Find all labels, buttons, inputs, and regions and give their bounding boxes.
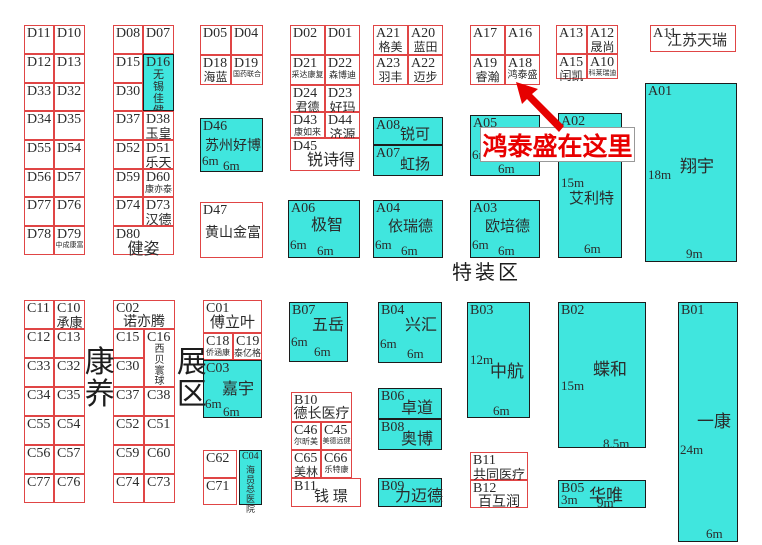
booth-d45: D45锐诗得 (290, 138, 360, 171)
booth-a12: A12晟尚 (587, 25, 618, 54)
booth-name: 钱 璟 (314, 490, 348, 506)
booth-code: C55 (25, 417, 53, 432)
booth-code: D23 (326, 86, 359, 101)
booth-c10: C10承康 (54, 300, 85, 329)
booth-d35: D35 (54, 111, 85, 140)
booth-code: D76 (55, 198, 84, 213)
booth-name: 科莱瑞迪 (588, 70, 617, 77)
booth-d54: D54 (54, 140, 85, 169)
booth-code: D34 (25, 112, 53, 127)
booth-code: D12 (25, 55, 53, 70)
booth-code: D43 (291, 113, 324, 128)
booth-code: A20 (409, 26, 442, 41)
dimension-label: 3m (561, 493, 578, 506)
booth-code: D02 (291, 26, 324, 41)
booth-code: A06 (289, 201, 359, 216)
booth-code: A10 (588, 55, 617, 70)
booth-d21: D21采达康复 (290, 55, 325, 85)
booth-code: C33 (25, 359, 53, 374)
booth-name: 乐特康 (322, 466, 351, 474)
booth-d34: D34 (24, 111, 54, 140)
booth-code: A21 (374, 26, 407, 41)
booth-name: 采达康复 (291, 71, 324, 79)
booth-d08: D08 (113, 25, 143, 54)
booth-code: D22 (326, 56, 359, 71)
booth-name: 翔宇 (680, 158, 714, 176)
booth-b09: B09力迈德 (378, 478, 442, 507)
booth-code: C10 (55, 301, 84, 316)
booth-code: A17 (471, 26, 504, 41)
booth-d55: D55 (24, 140, 54, 169)
booth-c33: C33 (24, 358, 54, 387)
dimension-label: 6m (314, 345, 331, 358)
booth-b02: B02蝶和15m8.5m (558, 302, 646, 448)
dimension-label: 6m (498, 162, 515, 175)
booth-name: 奥博 (401, 432, 433, 449)
booth-code: B04 (379, 303, 441, 318)
booth-code: D13 (55, 55, 84, 70)
booth-code: C11 (25, 301, 53, 316)
booth-code: B10 (292, 393, 351, 408)
booth-code: D10 (55, 26, 84, 41)
booth-code: D35 (55, 112, 84, 127)
booth-name: 迈步 (409, 71, 442, 84)
booth-code: D51 (144, 141, 173, 156)
dimension-label: 6m (375, 238, 392, 251)
booth-a01: A01翔宇18m9m (645, 83, 737, 262)
booth-name: 艾利特 (569, 192, 614, 208)
booth-name: 黄山金富 (205, 227, 261, 242)
booth-a10: A10科莱瑞迪 (587, 54, 618, 79)
booth-code: D77 (25, 198, 53, 213)
kangyang-zone-label: 康养 (84, 347, 116, 410)
booth-code: D24 (291, 86, 324, 101)
booth-code: C03 (204, 361, 261, 376)
booth-code: C18 (204, 334, 232, 349)
booth-code: D07 (144, 26, 173, 41)
booth-code: C60 (145, 446, 174, 461)
booth-code: C66 (322, 451, 351, 466)
booth-code: A15 (557, 55, 586, 70)
booth-code: B07 (290, 303, 347, 318)
booth-code: C57 (55, 446, 84, 461)
booth-code: C04 (240, 451, 261, 462)
booth-name: 力迈德 (395, 489, 443, 506)
dimension-label: 12m (470, 353, 493, 366)
dimension-label: 6m (498, 244, 515, 257)
dimension-label: 8.5m (603, 437, 629, 450)
booth-name: 德长医疗 (292, 408, 351, 423)
booth-d24: D24君德 (290, 85, 325, 112)
booth-code: D74 (114, 198, 142, 213)
dimension-label: 6m (317, 244, 334, 257)
booth-code: A22 (409, 56, 442, 71)
booth-c02: C02诺亦腾 (113, 300, 175, 329)
booth-name: 一康 (697, 413, 731, 431)
booth-name: 玉皇 (144, 127, 173, 141)
booth-code: C74 (114, 475, 143, 490)
booth-a21: A21格美 (373, 25, 408, 55)
booth-name: 锐诗得 (307, 153, 355, 170)
booth-a17: A17 (470, 25, 505, 55)
booth-name: 西贝寰球 (154, 345, 165, 388)
booth-b05: B05华唯3m9m (558, 480, 646, 508)
booth-d57: D57 (54, 169, 85, 197)
booth-d37: D37 (113, 111, 143, 140)
booth-d43: D43康如来 (290, 112, 325, 138)
booth-name: 蝶和 (593, 361, 627, 379)
booth-d10: D10 (54, 25, 85, 54)
booth-code: C01 (204, 301, 261, 316)
booth-c16: C16西贝寰球 (144, 329, 175, 387)
booth-name: 蓝田 (409, 41, 442, 54)
booth-name: 国药联合 (232, 71, 262, 78)
booth-name: 兴汇 (405, 318, 437, 335)
booth-b04: B04兴汇6m6m (378, 302, 442, 363)
booth-code: C37 (114, 388, 143, 403)
booth-code: C76 (55, 475, 84, 490)
booth-d76: D76 (54, 197, 85, 226)
booth-code: A01 (646, 84, 736, 99)
booth-code: C59 (114, 446, 143, 461)
booth-code: D79 (55, 227, 84, 242)
booth-code: C71 (204, 479, 236, 494)
dimension-label: 6m (380, 337, 397, 350)
booth-c55: C55 (24, 416, 54, 445)
booth-c01: C01傅立叶 (203, 300, 262, 333)
booth-a22: A22迈步 (408, 55, 443, 85)
booth-code: A13 (557, 26, 586, 41)
booth-d18: D18海蓝 (200, 55, 231, 85)
booth-code: D30 (114, 84, 142, 99)
booth-code: D04 (232, 26, 262, 41)
booth-name: 中成康富 (55, 242, 84, 249)
booth-d44: D44济源 (325, 112, 360, 138)
booth-code: C46 (292, 423, 320, 438)
booth-c38: C38 (144, 387, 175, 416)
booth-c56: C56 (24, 445, 54, 474)
booth-a04: A04依瑞德6m6m (373, 200, 443, 258)
booth-name: 泰亿格 (234, 349, 261, 358)
booth-name: 五岳 (312, 318, 344, 335)
booth-name: 健姿 (114, 242, 173, 259)
booth-d73: D73汉德 (143, 197, 174, 226)
booth-name: 中航 (490, 363, 524, 381)
booth-code: D11 (25, 26, 53, 41)
booth-name: 康亦泰 (144, 185, 173, 194)
booth-code: C30 (114, 359, 143, 374)
booth-code: D73 (144, 198, 173, 213)
booth-code: C62 (204, 451, 236, 466)
dimension-label: 6m (223, 159, 240, 172)
booth-code: D55 (25, 141, 53, 156)
booth-c19: C19泰亿格 (233, 333, 262, 360)
booth-code: D54 (55, 141, 84, 156)
booth-a15: A15闰凯 (556, 54, 587, 79)
dimension-label: 6m (291, 335, 308, 348)
booth-c73: C73 (144, 474, 175, 503)
booth-name: 百互润 (471, 496, 527, 511)
booth-code: C15 (114, 330, 143, 345)
highlight-banner: 鸿泰盛在这里 (480, 127, 635, 162)
booth-name: 闰凯 (557, 70, 586, 83)
booth-b10: B10德长医疗 (291, 392, 352, 422)
booth-d23: D23好玛 (325, 85, 360, 112)
booth-code: D47 (201, 203, 262, 218)
booth-code: D01 (326, 26, 359, 41)
booth-d05: D05 (200, 25, 231, 55)
booth-c13: C13 (54, 329, 85, 358)
booth-code: C19 (234, 334, 261, 349)
booth-a19: A19睿瀚 (470, 55, 505, 85)
booth-c59: C59 (113, 445, 144, 474)
booth-name: 欧培德 (485, 220, 530, 236)
booth-b08: B08奥博 (378, 419, 442, 450)
booth-name: 羽丰 (374, 71, 407, 84)
booth-code: C13 (55, 330, 84, 345)
booth-a11: A11江苏天瑞 (650, 25, 736, 52)
booth-d12: D12 (24, 54, 54, 83)
booth-code: D80 (114, 227, 173, 242)
booth-c71: C71 (203, 478, 237, 505)
booth-d52: D52 (113, 140, 143, 169)
booth-code: D18 (201, 56, 230, 71)
special-zone-label: 特装区 (452, 263, 521, 284)
booth-c32: C32 (54, 358, 85, 387)
booth-code: C51 (145, 417, 174, 432)
booth-c51: C51 (144, 416, 175, 445)
booth-code: C65 (292, 451, 320, 466)
booth-code: C35 (55, 388, 84, 403)
booth-d77: D77 (24, 197, 54, 226)
booth-c30: C30 (113, 358, 144, 387)
booth-code: A03 (471, 201, 539, 216)
dimension-label: 15m (561, 176, 584, 189)
booth-d47: D47黄山金富 (200, 202, 263, 258)
booth-c11: C11 (24, 300, 54, 329)
booth-name: 睿瀚 (471, 71, 504, 84)
booth-d19: D19国药联合 (231, 55, 263, 85)
dimension-label: 18m (648, 168, 671, 181)
booth-name: 依瑞德 (388, 220, 433, 236)
booth-code: C16 (145, 330, 174, 345)
dimension-label: 9m (686, 247, 703, 260)
dimension-label: 6m (706, 527, 723, 540)
booth-b01: B01一康24m6m (678, 302, 738, 542)
booth-a16: A16 (505, 25, 540, 55)
booth-c65: C65美林 (291, 450, 321, 478)
booth-c76: C76 (54, 474, 85, 503)
booth-name: 美德远健 (322, 438, 351, 445)
booth-name: 卓道 (401, 401, 433, 418)
booth-d30: D30 (113, 83, 143, 111)
booth-d46: D46苏州好博6m6m (200, 118, 263, 172)
dimension-label: 6m (407, 347, 424, 360)
booth-name: 嘉宇 (222, 382, 254, 399)
booth-code: C54 (55, 417, 84, 432)
booth-c15: C15 (113, 329, 144, 358)
booth-c34: C34 (24, 387, 54, 416)
booth-c45: C45美德远健 (321, 422, 352, 450)
booth-d22: D22森博迪 (325, 55, 360, 85)
booth-c04: C04海员总医院 (239, 450, 262, 505)
booth-code: C38 (145, 388, 174, 403)
booth-name: 侨涵康 (204, 349, 232, 357)
booth-name: 格美 (374, 41, 407, 54)
booth-d56: D56 (24, 169, 54, 197)
booth-code: C52 (114, 417, 143, 432)
booth-name: 尔昕美 (292, 438, 320, 446)
booth-code: B12 (471, 481, 527, 496)
booth-code: B02 (559, 303, 645, 318)
booth-c12: C12 (24, 329, 54, 358)
dimension-label: 6m (472, 238, 489, 251)
booth-a13: A13 (556, 25, 587, 54)
booth-name: 康如来 (291, 128, 324, 137)
booth-d51: D51乐天 (143, 140, 174, 169)
booth-d78: D78 (24, 226, 54, 255)
booth-name: 江苏天瑞 (667, 34, 727, 50)
booth-code: D32 (55, 84, 84, 99)
booth-d04: D04 (231, 25, 263, 55)
booth-d32: D32 (54, 83, 85, 111)
booth-code: B01 (679, 303, 737, 318)
booth-code: C56 (25, 446, 53, 461)
dimension-label: 9m (597, 496, 614, 509)
booth-name: 锐可 (400, 128, 430, 144)
booth-d01: D01 (325, 25, 360, 55)
booth-code: A04 (374, 201, 442, 216)
booth-name: 乐天 (144, 156, 173, 170)
dimension-label: 15m (561, 379, 584, 392)
booth-code: C02 (114, 301, 174, 316)
booth-code: D15 (114, 55, 142, 70)
booth-name: 晟尚 (588, 41, 617, 54)
booth-a20: A20蓝田 (408, 25, 443, 55)
booth-code: A12 (588, 26, 617, 41)
booth-code: D57 (55, 170, 84, 185)
booth-code: D33 (25, 84, 53, 99)
booth-code: D46 (201, 119, 262, 134)
booth-code: D52 (114, 141, 142, 156)
booth-code: A19 (471, 56, 504, 71)
booth-a08: A08锐可 (373, 117, 443, 145)
booth-c18: C18侨涵康 (203, 333, 233, 360)
booth-c66: C66乐特康 (321, 450, 352, 478)
booth-code: D59 (114, 170, 142, 185)
dimension-label: 6m (290, 238, 307, 251)
booth-code: D37 (114, 112, 142, 127)
booth-name: 鸿泰盛 (506, 71, 539, 82)
booth-name: 海员总医院 (246, 466, 256, 515)
dimension-label: 6m (493, 404, 510, 417)
dimension-label: 6m (223, 405, 240, 418)
booth-d60: D60康亦泰 (143, 169, 174, 197)
booth-name: 森博迪 (326, 71, 359, 80)
booth-code: D56 (25, 170, 53, 185)
booth-a18: A18鸿泰盛 (505, 55, 540, 85)
booth-a07: A07虹扬 (373, 145, 443, 176)
booth-c60: C60 (144, 445, 175, 474)
booth-d74: D74 (113, 197, 143, 226)
booth-c74: C74 (113, 474, 144, 503)
booth-code: D44 (326, 113, 359, 128)
dimension-label: 6m (202, 154, 219, 167)
booth-d07: D07 (143, 25, 174, 54)
booth-code: C73 (145, 475, 174, 490)
booth-code: D21 (291, 56, 324, 71)
booth-d80: D80健姿 (113, 226, 174, 255)
booth-name: 傅立叶 (204, 316, 261, 332)
booth-a23: A23羽丰 (373, 55, 408, 85)
booth-code: D05 (201, 26, 230, 41)
booth-code: C32 (55, 359, 84, 374)
booth-c52: C52 (113, 416, 144, 445)
booth-c77: C77 (24, 474, 54, 503)
booth-d13: D13 (54, 54, 85, 83)
booth-d59: D59 (113, 169, 143, 197)
zhanqu-zone-label: 展区 (176, 347, 208, 410)
booth-b11: B11钱 璟 (291, 478, 361, 507)
booth-code: B03 (468, 303, 529, 318)
booth-name: 美林 (292, 466, 320, 479)
dimension-label: 24m (680, 443, 703, 456)
booth-code: D19 (232, 56, 262, 71)
booth-code: A23 (374, 56, 407, 71)
booth-code: D16 (144, 55, 173, 70)
booth-name: 海蓝 (201, 71, 230, 84)
booth-c03: C03嘉宇6m6m (203, 360, 262, 418)
booth-a06: A06极智6m6m (288, 200, 360, 258)
booth-name: 承康 (55, 316, 84, 330)
exhibition-floor-plan: D11D10D12D13D33D32D34D35D55D54D56D57D77D… (0, 0, 762, 545)
booth-code: C12 (25, 330, 53, 345)
booth-d79: D79中成康富 (54, 226, 85, 255)
booth-code: C77 (25, 475, 53, 490)
booth-code: C45 (322, 423, 351, 438)
dimension-label: 6m (584, 242, 601, 255)
booth-code: C34 (25, 388, 53, 403)
booth-name: 汉德 (144, 213, 173, 227)
booth-code: D60 (144, 170, 173, 185)
booth-c46: C46尔昕美 (291, 422, 321, 450)
booth-d38: D38玉皇 (143, 111, 174, 140)
booth-code: D78 (25, 227, 53, 242)
booth-d11: D11 (24, 25, 54, 54)
booth-c57: C57 (54, 445, 85, 474)
booth-d33: D33 (24, 83, 54, 111)
booth-c35: C35 (54, 387, 85, 416)
booth-b06: B06卓道 (378, 388, 442, 419)
booth-a03: A03欧培德6m6m (470, 200, 540, 258)
booth-c62: C62 (203, 450, 237, 478)
booth-code: D38 (144, 112, 173, 127)
booth-b03: B03中航12m6m (467, 302, 530, 418)
booth-c37: C37 (113, 387, 144, 416)
booth-c54: C54 (54, 416, 85, 445)
booth-d02: D02 (290, 25, 325, 55)
booth-b12: B12百互润 (470, 480, 528, 508)
booth-code: B11 (471, 453, 527, 468)
booth-b11: B11共同医疗 (470, 452, 528, 480)
dimension-label: 6m (401, 244, 418, 257)
booth-name: 虹扬 (400, 158, 430, 174)
booth-code: A18 (506, 56, 539, 71)
booth-d15: D15 (113, 54, 143, 83)
booth-b07: B07五岳6m6m (289, 302, 348, 362)
booth-name: 极智 (311, 218, 343, 235)
booth-d16: D16无锡佳健 (143, 54, 174, 111)
